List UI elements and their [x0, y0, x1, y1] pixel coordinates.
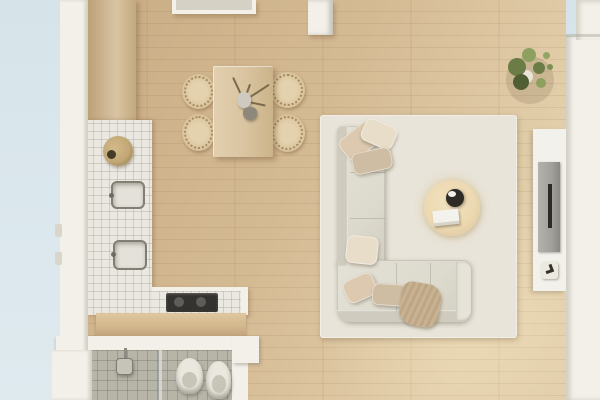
plant-foliage [513, 74, 529, 90]
left-wall [60, 0, 88, 354]
book [432, 209, 459, 227]
burner [174, 297, 184, 307]
kitchen-sink-second [113, 240, 147, 270]
bathroom-wall-stub [232, 336, 259, 363]
fruit-bowl [103, 136, 133, 166]
floor-plan-render [0, 0, 600, 400]
sofa-cushion-seam [350, 218, 385, 219]
dark-vase [446, 189, 464, 207]
door-hinge [55, 224, 62, 237]
left-wall-bottom [52, 350, 92, 400]
plant-foliage [533, 62, 545, 74]
door-hinge [55, 252, 62, 265]
plant-foliage [522, 48, 536, 62]
chair-spindles [184, 116, 213, 149]
plant-foliage [543, 52, 550, 59]
chair-spindles [272, 74, 303, 106]
plant-foliage [508, 58, 526, 76]
pillar [308, 0, 333, 35]
toilet [176, 358, 203, 394]
sofa-armrest [456, 262, 471, 320]
throw-pillow [345, 234, 380, 265]
breakfast-bar [96, 313, 246, 337]
plant-foliage [547, 64, 553, 70]
right-wall [566, 36, 600, 400]
tv-screen-edge [548, 184, 552, 228]
bidet [206, 361, 231, 399]
chair-spindles [184, 76, 213, 107]
shower-glass-partition [158, 350, 162, 400]
plant-foliage [536, 78, 546, 88]
fruit [107, 150, 116, 159]
shower-head [116, 358, 133, 375]
small-vase [237, 92, 251, 108]
dining-chair [182, 114, 215, 151]
toilet-bowl [182, 372, 197, 389]
carafe [243, 107, 257, 120]
console-table [172, 0, 256, 14]
kitchen-sink [111, 181, 145, 209]
decor-mark [544, 264, 554, 274]
wall-seam [566, 34, 600, 37]
dining-chair [270, 114, 305, 152]
tall-wood-cabinet [88, 0, 136, 122]
dining-chair [270, 72, 305, 108]
burner [196, 297, 206, 307]
chair-spindles [272, 116, 303, 150]
bidet-bowl [212, 375, 226, 392]
decor-object [541, 262, 558, 279]
dining-chair [182, 74, 215, 109]
cooktop [166, 293, 218, 312]
